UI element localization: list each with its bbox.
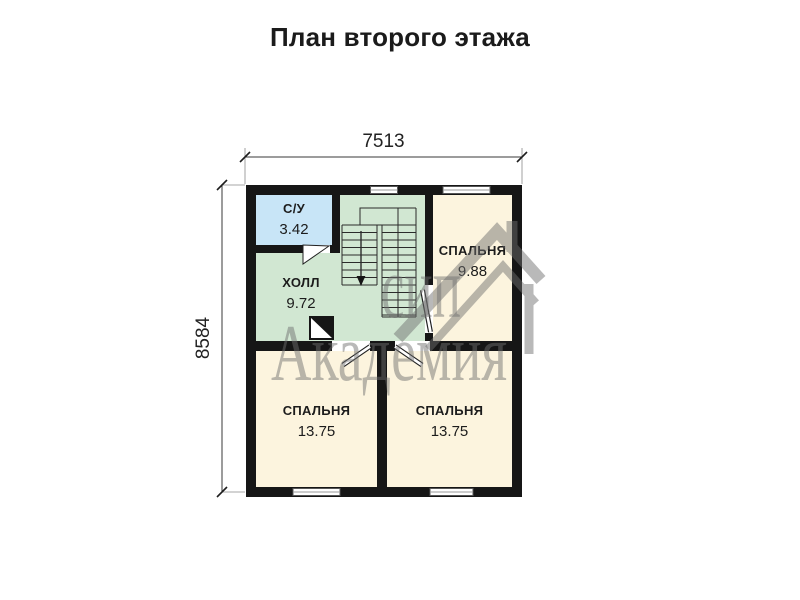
room-area: 9.72: [258, 296, 344, 312]
floor-plan-page: План второго этажа 7513 8584: [0, 0, 800, 600]
room-label-bathroom: С/У 3.42: [256, 201, 332, 238]
left-dimension-label: 8584: [193, 298, 215, 378]
window-bottom-left-bedroom: [293, 489, 340, 496]
room-name: СПАЛЬНЯ: [387, 403, 512, 419]
window-bottom-right-bedroom: [430, 489, 473, 496]
room-name: СПАЛЬНЯ: [256, 403, 377, 419]
room-area: 13.75: [256, 424, 377, 440]
window-top-stairs: [371, 187, 398, 194]
room-label-hall: ХОЛЛ 9.72: [258, 275, 344, 312]
floor-plan: С/У 3.42 ХОЛЛ 9.72 СПАЛЬНЯ 9.88 СПАЛЬНЯ …: [246, 185, 522, 497]
room-label-bedroom-left: СПАЛЬНЯ 13.75: [256, 403, 377, 440]
room-label-bedroom-top: СПАЛЬНЯ 9.88: [433, 243, 512, 280]
top-dimension-label: 7513: [245, 131, 522, 153]
room-area: 9.88: [433, 264, 512, 280]
room-name: С/У: [256, 201, 332, 217]
window-top-bedroom: [443, 187, 490, 194]
room-area: 13.75: [387, 424, 512, 440]
ventilation-shaft-icon: [310, 317, 333, 339]
room-label-bedroom-right: СПАЛЬНЯ 13.75: [387, 403, 512, 440]
room-area: 3.42: [256, 222, 332, 238]
room-name: СПАЛЬНЯ: [433, 243, 512, 259]
room-name: ХОЛЛ: [258, 275, 344, 291]
